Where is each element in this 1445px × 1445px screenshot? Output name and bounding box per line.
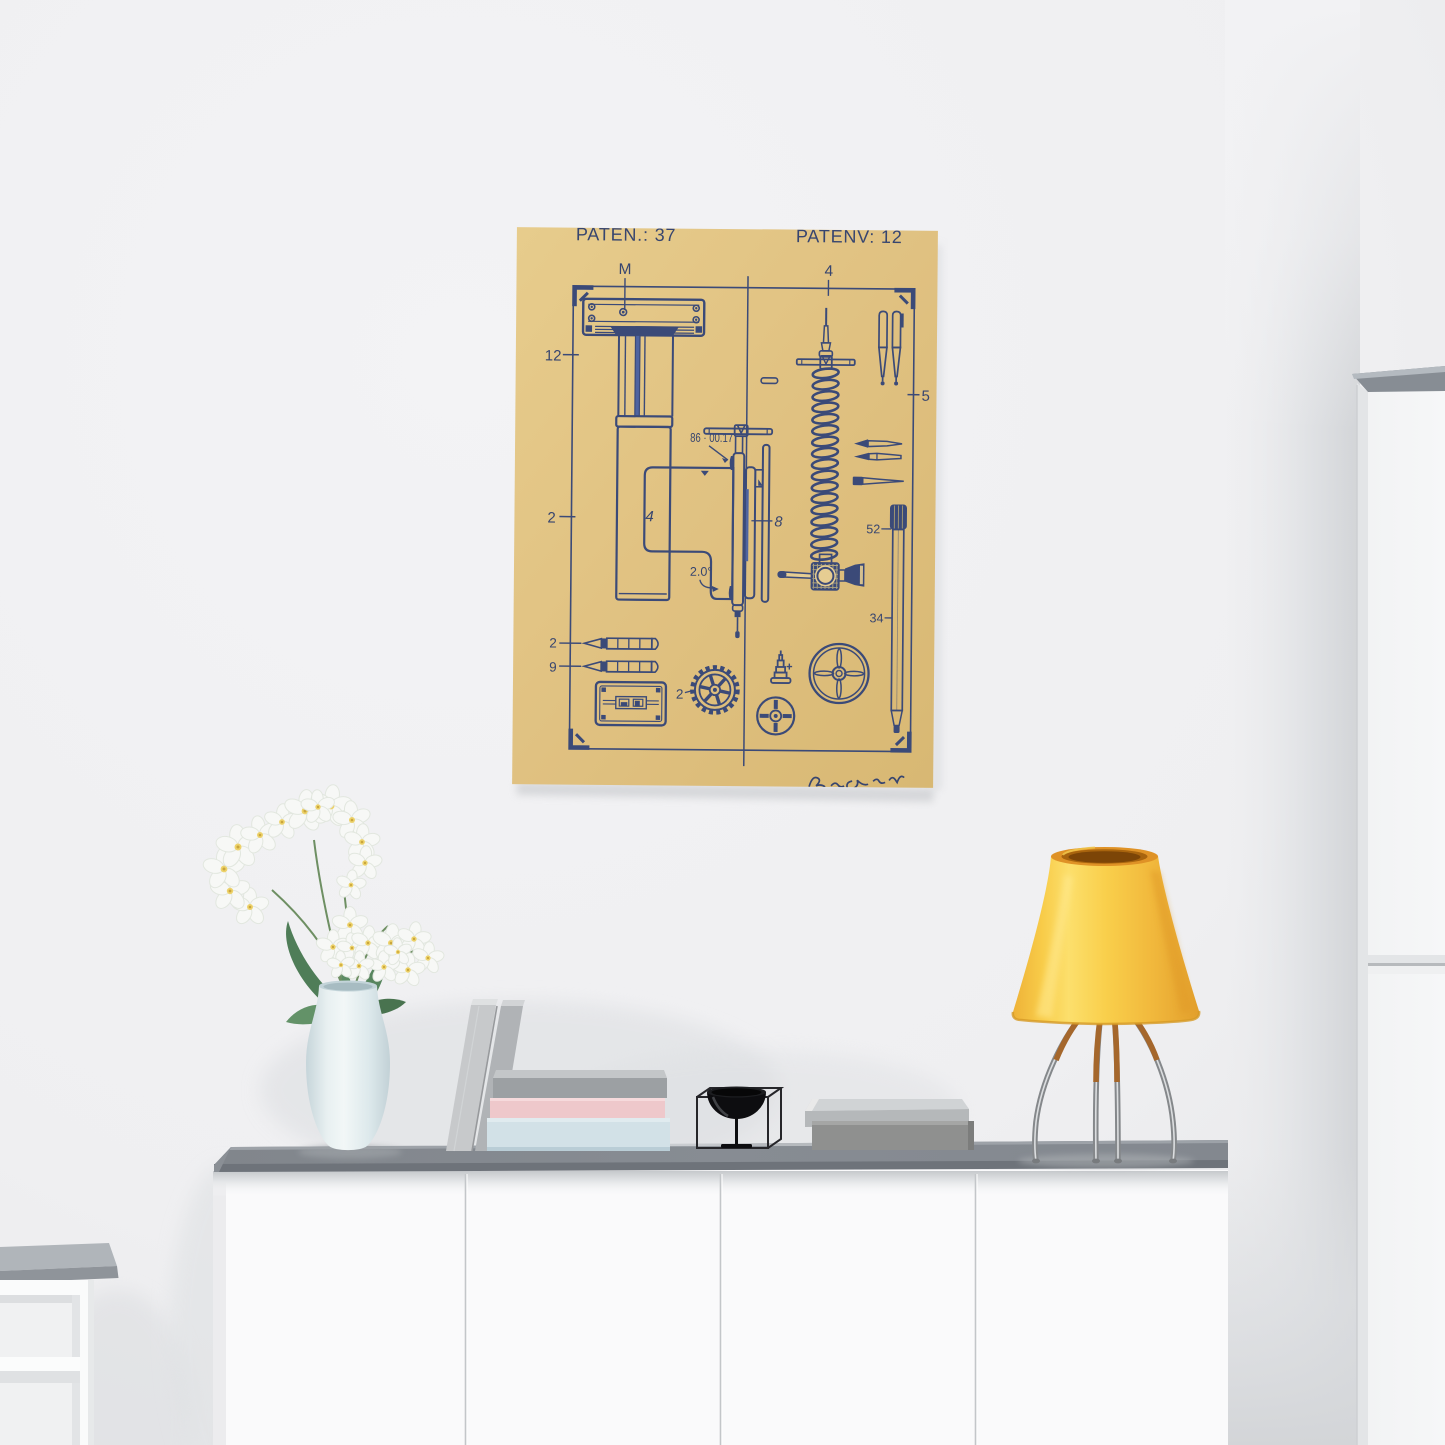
svg-text:12: 12 — [545, 347, 562, 364]
svg-text:2.0°: 2.0° — [690, 565, 713, 579]
svg-text:2: 2 — [547, 509, 555, 526]
svg-text:5: 5 — [921, 388, 929, 405]
svg-text:86 · 00.17: 86 · 00.17 — [690, 431, 733, 445]
svg-text:52: 52 — [866, 522, 880, 536]
svg-text:34: 34 — [869, 611, 883, 625]
svg-text:4: 4 — [825, 263, 834, 280]
svg-text:2: 2 — [549, 635, 557, 650]
svg-text:4: 4 — [645, 508, 653, 525]
svg-text:2: 2 — [676, 687, 684, 702]
svg-text:9: 9 — [549, 659, 557, 674]
svg-text:M: M — [619, 261, 632, 278]
svg-text:8: 8 — [774, 514, 782, 530]
